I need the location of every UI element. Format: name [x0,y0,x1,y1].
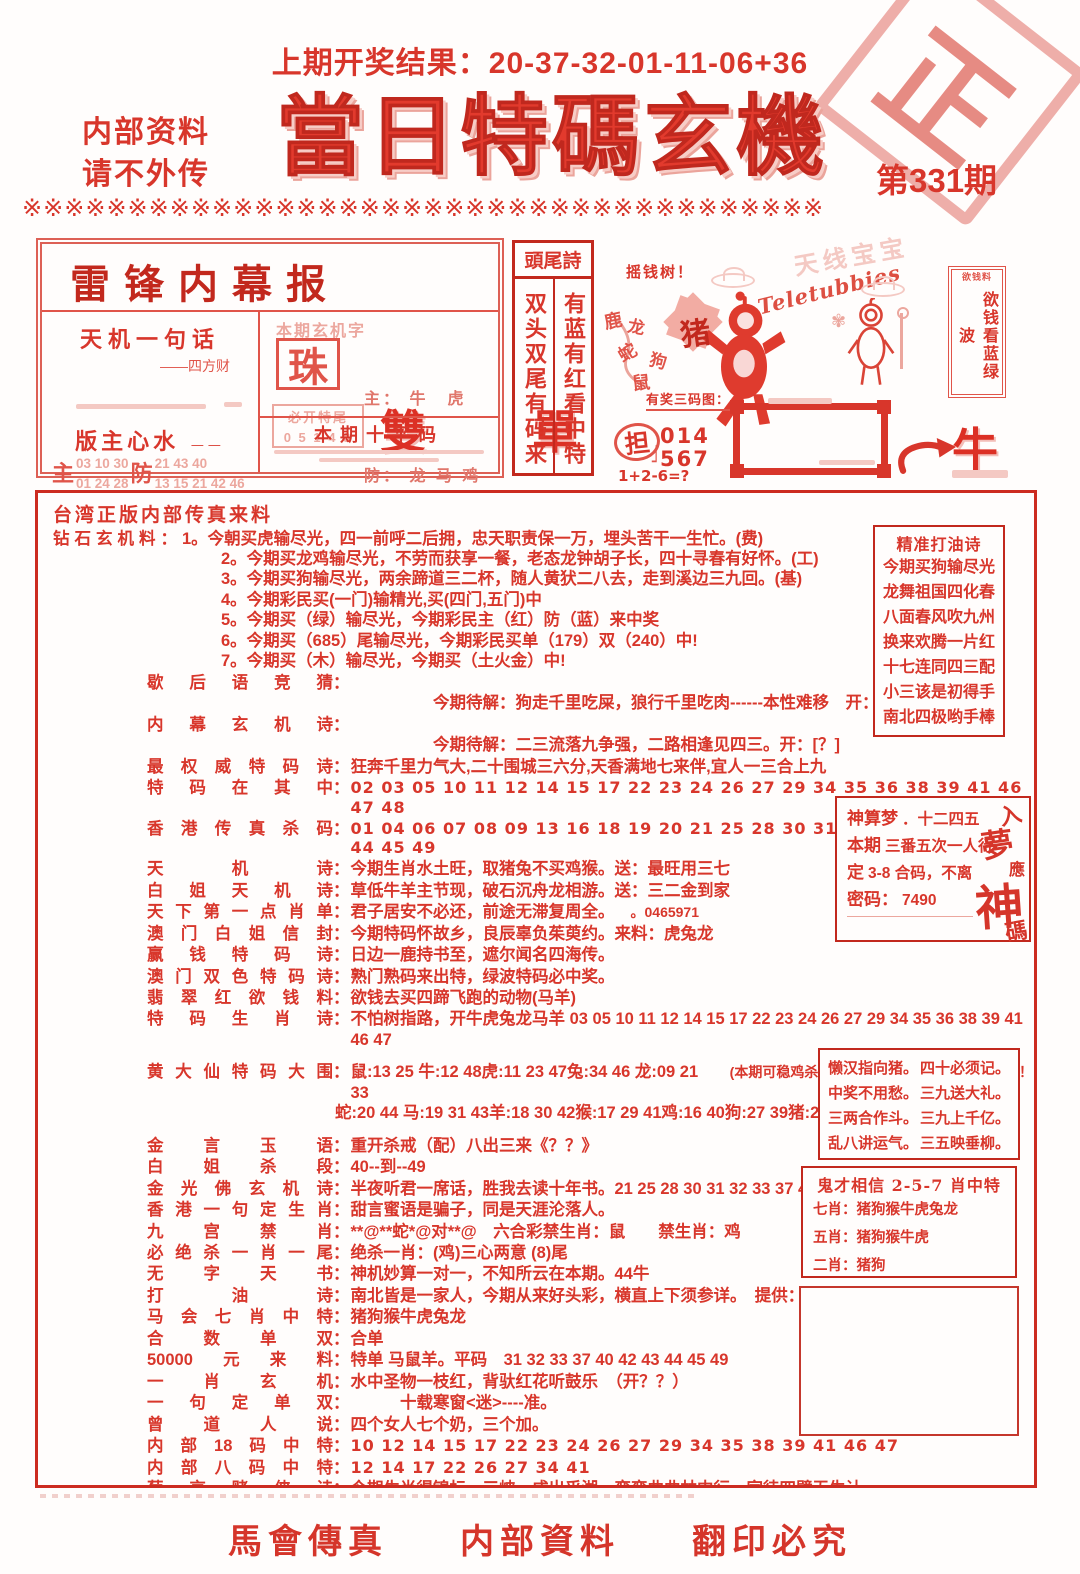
footer: 馬會傳真 内部資料 翻印必究 [0,1514,1080,1563]
row-text: 合单 [351,1329,384,1349]
row-label: 澳门白姐信封 [147,924,333,944]
row-colon: ： [333,1307,350,1327]
row-colon: ： [333,1243,350,1263]
couplet-lines: 懒汉指向猪。四十必须记。中奖不用愁。三九送大礼。三两合作斗。三九上千亿。乱八讲运… [828,1056,1010,1156]
scroll-banner-text: 欲钱看蓝绿波 [953,283,1001,389]
head-tail-column-left: 双头双尾有码来 [515,279,553,475]
footer-item-copyright: 翻印必究 [692,1514,852,1563]
poem-line: 八面春风吹九州 [875,605,1003,630]
row-label: 歇后语竞猜 [147,673,333,693]
row-text: 狂奔千里力气大,二十围城三六分,天香满地七来伴,宜人一三合上九 [351,757,827,777]
row-text: 十载寒窗<迷>----准。 [351,1393,557,1413]
row-colon: ： [333,1200,350,1220]
row-text: 10 12 14 15 17 22 23 24 26 27 29 34 35 3… [351,1436,899,1456]
content-row: 澳门双色特码诗：熟门熟码来出特，绿波特码必中奖。 [51,967,1033,987]
row-colon: ： [333,778,350,798]
row-label: 必绝杀一肖一尾 [147,1243,333,1263]
row-label: 最权威特码诗 [147,757,333,777]
faint-print-bar [76,404,206,409]
row-label: 一肖玄机 [147,1372,333,1392]
row-label: 白姐杀段 [147,1157,333,1177]
dream-oracle-vertical-motto: 入夢應神碼 [969,798,1029,940]
head-tail-poem-title: 頭尾詩 [515,243,591,279]
dan-number-top: 014 [660,425,710,448]
row-text: 40--到--49 [351,1157,426,1177]
poem-line: 十七连同四三配 [875,655,1003,680]
frame-corner [730,400,744,414]
row-line: 赢钱特码诗：日边一鹿持书至，遮尔闻名四海传。 [51,945,1033,965]
row-label: 白姐天机诗 [147,881,333,901]
row-label: 澳门双色特码诗 [147,967,333,987]
couplet-line: 三两合作斗。三九上千亿。 [828,1106,1010,1131]
internal-note-line1: 内部资料 [82,112,210,154]
row-label: 50000元来料 [147,1350,333,1370]
row-label: 内幕玄机诗 [147,715,333,735]
leifeng-title: 雷锋内幕报 [70,252,498,310]
oracle-line-bold: 神算梦 [847,809,898,829]
row-text: 猪狗猴牛虎兔龙 [351,1307,467,1327]
oracle-line-bold: 密码： [847,890,898,910]
row-line: 内部八码中特：12 14 17 22 26 27 34 41 [51,1458,1033,1478]
row-label: 香港一句定生肖 [147,1200,333,1220]
animal-char: 猪 [677,307,713,355]
row-text: 神机妙算一对一，不知所云在本期。44牛 [351,1264,650,1284]
row-colon: ： [333,859,350,879]
tianji-phrase-label: 天机一句话 [42,322,258,354]
wand-icon [900,313,903,369]
row-colon: ： [333,1479,350,1488]
row-line: 最权威特码诗：狂奔千里力气大,二十围城三六分,天香满地七来伴,宜人一三合上九 [51,757,1033,777]
frame-corner [877,400,891,414]
zodiac-line: 七肖：猪狗猴牛虎兔龙 [813,1196,1005,1224]
cloud-icon [711,273,755,288]
couplet-left: 懒汉指向猪。 [828,1056,918,1081]
poem-line: 小三该是初得手 [875,680,1003,705]
content-row: 台湾正版内部传真来料 [51,504,1033,528]
row-colon: ： [333,1393,350,1413]
row-colon: ： [333,819,350,839]
row-line: 内部18码中特：10 12 14 15 17 22 23 24 26 27 29… [51,1436,1033,1456]
row-colon: ： [333,1179,350,1199]
row-colon: ： [333,1136,350,1156]
formula-hint: 1+2-6=? [618,467,689,485]
couplet-left: 乱八讲运气。 [828,1131,918,1156]
empty-result-box [799,1286,1019,1436]
row-label: 马会七肖中特 [147,1307,333,1327]
row-line: 澳门双色特码诗：熟门熟码来出特，绿波特码必中奖。 [51,967,1033,987]
couplet-right: 三九送大礼。 [920,1081,1010,1106]
leifeng-insider-box: 雷锋内幕报 天机一句话 ——四方财 版主心水 —— 主 03 10 30 01 … [36,238,504,478]
row-text: 特单 马鼠羊。平码 31 32 33 37 40 42 43 44 45 49 [351,1350,729,1370]
head-tail-columns: 双头双尾有码来 有蓝有红看中特 [515,279,591,475]
row-colon: ： [333,967,350,987]
row-text: 今期生肖水土旺，取猪兔不买鸡猴。送：最旺用三七 [351,859,731,879]
row-text: 重开杀戒（配）八出三来《？？》 [351,1136,599,1156]
zhu-number-rows: 03 10 30 01 24 28 [76,454,129,495]
faint-print-bar [319,458,439,462]
banzhu-label: 版主心水 —— [42,424,258,456]
row-label: 金言玉语 [147,1136,333,1156]
row-label: 葡京赌侠诗 [147,1479,333,1488]
page-title: 當日特碼玄機 [276,66,828,193]
divider-ornament: ※※※※※※※※※※※※※※※※※※※※※※※※※※※※※※※※※※※※※※ [22,194,1058,223]
frame-corner [877,464,891,478]
money-tree-label: 摇钱树！ [626,261,694,282]
row-colon: ： [333,673,350,693]
couplet-left: 三两合作斗。 [828,1106,918,1131]
row-colon: ： [333,1157,350,1177]
row-colon: ： [333,1458,350,1478]
internal-note-line2: 请不外传 [82,154,210,196]
row-text: 今期特码怀故乡，良辰辜负茱萸约。来料：虎兔龙 [351,924,714,944]
fang-number-rows: 21 43 40 13 15 21 42 46 [155,454,245,495]
row-label: 曾道人说 [147,1415,333,1435]
faint-print-bar [224,402,242,407]
footer-item-internal: 内部資料 [460,1514,620,1563]
ten-flat-codes-section: 本期十平码 [260,416,498,472]
row-label: 内部18码中特 [147,1436,333,1456]
content-row: 内部八码中特：12 14 17 22 26 27 34 41 [51,1458,1033,1478]
couplet-left: 中奖不用愁。 [828,1081,918,1106]
couplet-line: 乱八讲运气。三五映垂柳。 [828,1131,1010,1156]
row-colon: ： [333,1222,350,1242]
row-text: 欲钱去买四蹄飞跑的动物(马羊) [351,988,577,1008]
row-text: 台湾正版内部传真来料 [53,504,273,528]
oracle-vertical-char: 碼 [1002,912,1029,947]
row-label: 特码生肖诗 [147,1009,333,1029]
row-label: 翡翠红欲钱料 [147,988,333,1008]
poem-line: 南北四极哟手棒 [875,705,1003,730]
three-codes-caption: 有奖三码图： [646,389,730,411]
head-tail-column-right: 有蓝有红看中特 [553,279,591,475]
oracle-line-bold: 定 [847,863,864,883]
curved-arrow-icon [896,432,958,476]
row-colon: ： [333,1372,350,1392]
leifeng-body: 天机一句话 ——四方财 版主心水 —— 主 03 10 30 01 24 28 … [42,310,498,472]
leifeng-left-panel: 天机一句话 ——四方财 版主心水 —— 主 03 10 30 01 24 28 … [42,312,260,472]
row-colon: ： [333,881,350,901]
row-note: 。0465971 [631,904,700,921]
leifeng-right-panel: 本期玄机字 珠 主： 牛 虎 防： 龙 马 鸡 必开特尾 0 5 1 4 8 雙… [260,312,498,472]
row-label: 黄大仙特码大围 [147,1062,333,1082]
row-colon: ： [333,1286,350,1306]
frame-corner [730,464,744,478]
doggerel-poem-box: 精准打油诗 今期买狗输尽光龙舞祖国四化春八面春风吹九州换来欢腾一片红十七连同四三… [873,525,1005,737]
row-label: 赢钱特码诗 [147,945,333,965]
special-code-frame [733,403,888,475]
faint-print-bar [819,460,875,465]
row-text: 日边一鹿持书至，遮尔闻名四海传。 [351,945,615,965]
doggerel-poem-title: 精准打油诗 [875,531,1003,555]
row-colon: ： [333,1350,350,1370]
mystery-char-box: 珠 [276,338,340,390]
row-text: 君子居安不必还，前途无滞复周全。 [351,902,615,922]
row-text: 不怕树指路，开牛虎兔龙马羊 03 05 10 11 12 14 15 17 22… [351,1009,1034,1050]
row-colon: ： [333,1009,350,1029]
content-row: 内部18码中特：10 12 14 15 17 22 23 24 26 27 29… [51,1436,1033,1456]
row-colon: ： [333,1436,350,1456]
row-line: 台湾正版内部传真来料 [51,504,1033,528]
dream-oracle-box: 神算梦．十二四五本期三番五次一人行定3-8 合码，不离密码：7490 入夢應神碼 [835,796,1031,942]
row-text: 四个女人七个奶，三个加。 [351,1415,549,1435]
cloud-icon [861,282,905,297]
row-text: 12 14 17 22 26 27 34 41 [351,1458,591,1478]
row-label: 香港传真杀码 [147,819,333,839]
row-text: 草低牛羊主节现，破石沉舟龙相游。送：三二金到家 [351,881,731,901]
row-colon: ： [333,988,350,1008]
banzhu-sub: —— [191,438,225,453]
couplet-right: 三五映垂柳。 [920,1131,1010,1156]
row-colon: ： [333,757,350,777]
head-tail-poem-box: 頭尾詩 双头双尾有码来 有蓝有红看中特 [512,240,594,476]
couplet-box: 懒汉指向猪。四十必须记。中奖不用愁。三九送大礼。三两合作斗。三九上千亿。乱八讲运… [818,1048,1020,1160]
tianji-phrase-sub: ——四方财 [160,356,258,376]
row-colon: ： [333,715,350,735]
scan-artifact-line [40,1494,700,1498]
zodiac-pick-lines: 七肖：猪狗猴牛虎兔龙五肖：猪狗猴牛虎二肖：猪狗 [813,1196,1005,1280]
couplet-right: 三九上千亿。 [920,1106,1010,1131]
row-colon: ： [333,1062,350,1082]
content-row: 特码生肖诗：不怕树指路，开牛虎兔龙马羊 03 05 10 11 12 14 15… [51,1009,1033,1050]
row-text: 今期生肖得锦标，三峡一成出乎湖，弯弯曲曲林中行，家徒四壁无生计。 [351,1479,879,1488]
row-text: 绝杀一肖：(鸡)三心两意 (8)尾 [351,1243,568,1263]
row-text: 熟门熟码来出特，绿波特码必中奖。 [351,967,615,987]
faint-print-bar [274,450,484,454]
doggerel-poem-lines: 今期买狗输尽光龙舞祖国四化春八面春风吹九州换来欢腾一片红十七连同四三配小三该是初… [875,555,1003,730]
banzhu-numbers: 主 03 10 30 01 24 28 防 21 43 40 13 15 21 … [50,454,254,495]
row-label: 天机诗 [147,859,333,879]
row-label: 钻石玄机料： [53,529,182,549]
row-label: 天下第一点肖单 [147,902,333,922]
faint-print-bar [768,398,832,404]
row-line: 葡京赌侠诗：今期生肖得锦标，三峡一成出乎湖，弯弯曲曲林中行，家徒四壁无生计。 [51,1479,1033,1488]
content-row: 翡翠红欲钱料：欲钱去买四蹄飞跑的动物(马羊) [51,988,1033,1008]
row-label: 无字天书 [147,1264,333,1284]
zodiac-line: 二肖：猪狗 [813,1252,1005,1280]
content-row: 赢钱特码诗：日边一鹿持书至，遮尔闻名四海传。 [51,945,1033,965]
scroll-banner-header: 欲钱料 [952,270,1002,283]
row-text: **@**蛇*@对**@ 六合彩禁生肖：鼠 禁生肖：鸡 [351,1222,741,1242]
row-line: 翡翠红欲钱料：欲钱去买四蹄飞跑的动物(马羊) [51,988,1033,1008]
money-scroll-banner: 欲钱料 欲钱看蓝绿波 [948,266,1006,398]
footer-item-fax: 馬會傳真 [228,1514,388,1563]
couplet-line: 中奖不用愁。三九送大礼。 [828,1081,1010,1106]
row-text: 水中圣物一枝红，背驮红花听鼓乐 （开？？） [351,1372,689,1392]
row-colon: ： [333,945,350,965]
main-content-box: 台湾正版内部传真来料钻石玄机料：1。今朝买虎输尽光，四一前呼二后拥，忠天职责保一… [35,490,1037,1488]
row-label: 特码在其中 [147,778,333,798]
row-text: 甜言蜜语是骗子，同是天涯沦落人。 [351,1200,615,1220]
row-colon: ： [333,924,350,944]
row-text: 1。今朝买虎输尽光，四一前呼二后拥，忠天职责保一万，埋头苦干一生忙。(费) [182,529,763,549]
oracle-line-bold: 本期 [847,836,881,856]
content-row: 葡京赌侠诗：今期生肖得锦标，三峡一成出乎湖，弯弯曲曲林中行，家徒四壁无生计。青井… [51,1479,1033,1488]
row-label: 一句定单双 [147,1393,333,1413]
row-colon: ： [333,1329,350,1349]
oracle-line: 密码：7490 [847,887,973,917]
row-line: 特码生肖诗：不怕树指路，开牛虎兔龙马羊 03 05 10 11 12 14 15… [51,1009,1033,1050]
row-label: 内部八码中特 [147,1458,333,1478]
row-colon: ： [333,1264,350,1284]
row-label: 九宫禁肖 [147,1222,333,1242]
row-subtext: 今期待解：二三流落九争强，二路相逢见四三。开：[？] [51,735,1033,755]
couplet-line: 懒汉指向猪。四十必须记。 [828,1056,1010,1081]
faint-print-bar [952,470,1008,478]
row-label: 打油诗 [147,1286,333,1306]
poem-line: 龙舞祖国四化春 [875,580,1003,605]
teletubby-outline-icon [844,298,898,390]
row-text: 鼠:13 25 牛:12 48虎:11 23 47兔:34 46 龙:09 21… [351,1062,714,1103]
couplet-right: 四十必须记。 [920,1056,1010,1081]
animal-char: 鹿 [601,305,624,334]
internal-note: 内部资料 请不外传 [82,112,210,196]
ten-flat-codes-title: 本期十平码 [260,421,498,447]
dan-numbers: 014 567 [660,425,710,471]
teletubbies-scene: 天线宝宝 Teletubbies ✾ 摇钱树！ 鹿龙蛇猪狗鼠 [598,235,938,485]
content-row: 最权威特码诗：狂奔千里力气大,二十围城三六分,天香满地七来伴,宜人一三合上九 [51,757,1033,777]
poem-line: 今期买狗输尽光 [875,555,1003,580]
row-colon: ： [333,902,350,922]
poem-line: 换来欢腾一片红 [875,630,1003,655]
zodiac-line: 五肖：猪狗猴牛虎 [813,1224,1005,1252]
zodiac-pick-box: 鬼才相信 2-5-7 肖中特 七肖：猪狗猴牛虎兔龙五肖：猪狗猴牛虎二肖：猪狗 [801,1166,1017,1278]
row-label: 合数单双 [147,1329,333,1349]
row-label: 金光佛玄机诗 [147,1179,333,1199]
row-colon: ： [333,1415,350,1435]
zodiac-pick-title: 鬼才相信 2-5-7 肖中特 [813,1172,1005,1196]
